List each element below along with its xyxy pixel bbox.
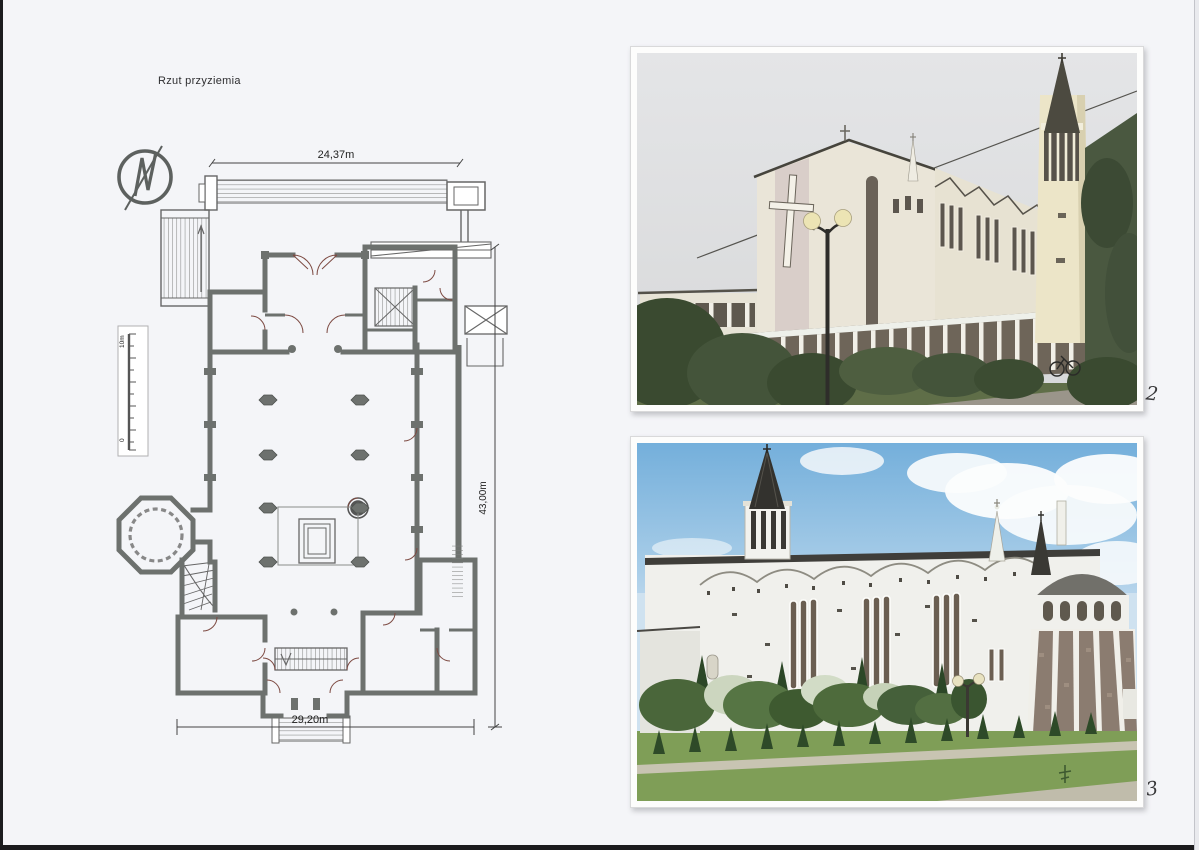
plan-title: Rzut przyziemia xyxy=(158,75,241,87)
photo-2-church-front-view xyxy=(637,53,1137,405)
scan-edge-bottom xyxy=(0,845,1199,850)
compass-north-arrow-icon xyxy=(119,146,171,210)
plan-scale-bar: 10m 0 xyxy=(118,326,148,456)
plan-dimension-right-label: 43,00m xyxy=(478,481,489,514)
plan-external-stair xyxy=(161,210,209,306)
floor-plan: 24,37m 43,00m 29,20m 10m 0 xyxy=(105,130,525,752)
photo2-bell-tower xyxy=(1035,53,1089,343)
scale-min-label: 0 xyxy=(119,438,126,442)
photo-print-2 xyxy=(630,46,1144,412)
photo-3-church-side-view xyxy=(637,443,1137,801)
photo3-far-wall xyxy=(1123,689,1137,719)
scale-max-label: 10m xyxy=(119,335,126,348)
plan-dimension-top-label: 24,37m xyxy=(318,149,355,161)
plan-chapel-ring xyxy=(130,509,182,561)
photo-2-number: 2 xyxy=(1145,382,1159,405)
plan-altar xyxy=(278,507,358,565)
scan-edge-right xyxy=(1195,0,1199,850)
plan-columns xyxy=(259,395,369,567)
plan-internal-stairs xyxy=(182,288,415,743)
plan-right-hatch xyxy=(452,545,463,600)
photo-3-number: 3 xyxy=(1145,777,1160,800)
plan-walls xyxy=(119,247,475,716)
photo-print-3 xyxy=(630,436,1144,808)
plan-canopy xyxy=(199,176,485,247)
plan-dimension-bottom-label: 29,20m xyxy=(292,714,329,726)
scanned-page: Rzut przyziemia xyxy=(0,0,1199,850)
photo3-apse xyxy=(1027,574,1137,743)
scan-edge-left xyxy=(0,0,3,850)
